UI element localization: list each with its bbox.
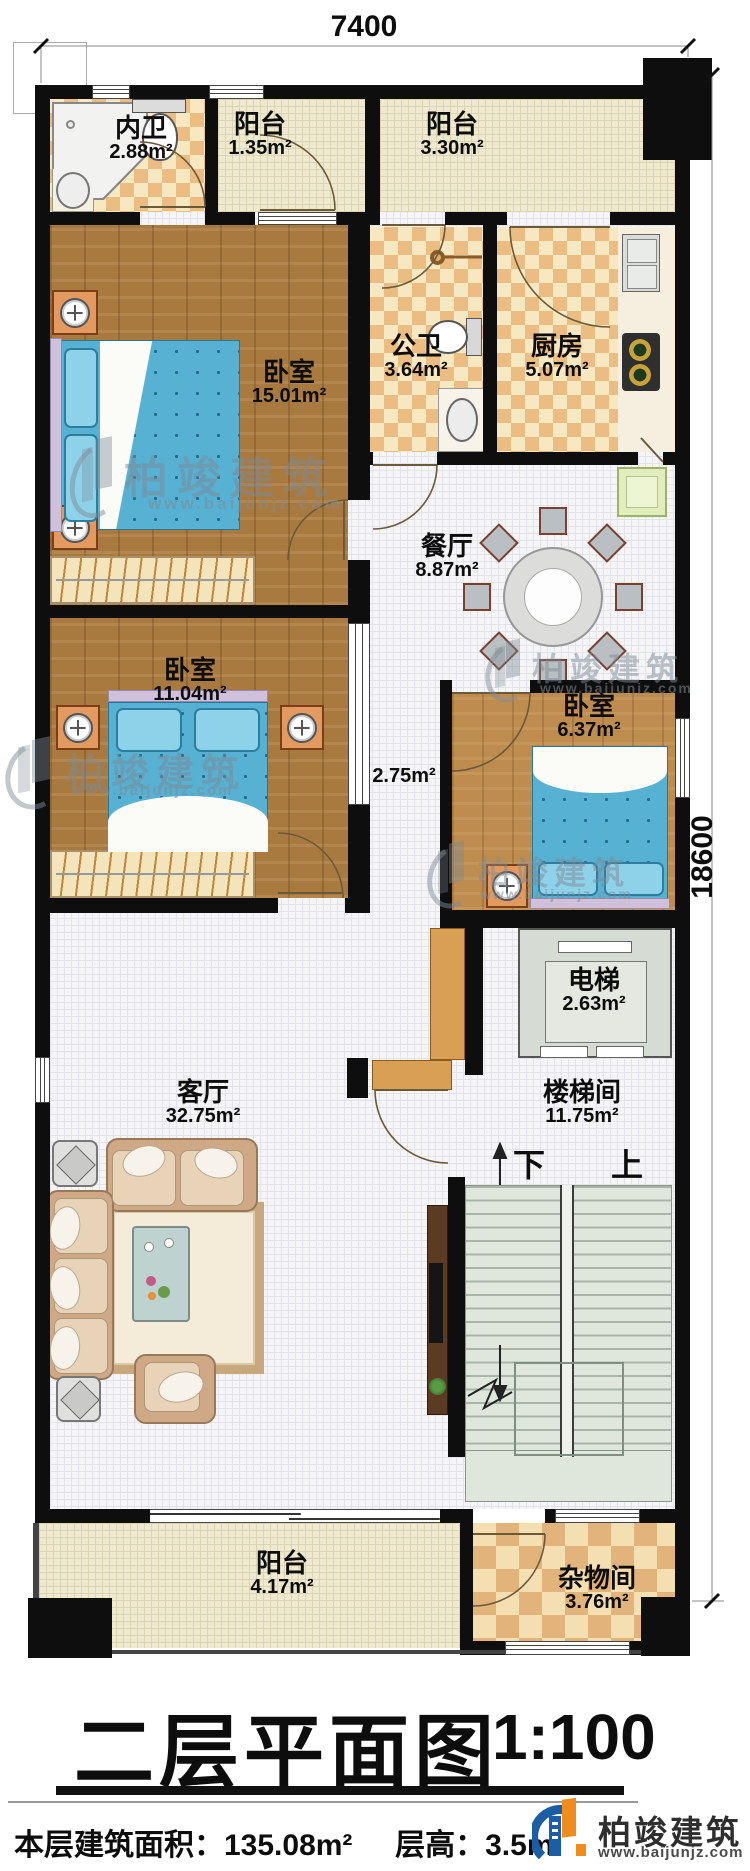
- wardrobe-rod: [56, 579, 249, 581]
- coffee-table: [132, 1226, 190, 1322]
- table-lamp-icon: [56, 1145, 96, 1185]
- room-area: 32.75m²: [166, 1106, 241, 1128]
- cup: [164, 1238, 174, 1248]
- room-area: 3.64m²: [384, 360, 447, 382]
- room-area: 5.07m²: [525, 360, 588, 382]
- room-area: 11.75m²: [543, 1106, 621, 1128]
- window: [209, 85, 264, 99]
- nightstand-lamp: [492, 871, 522, 901]
- bed-pillow: [538, 862, 598, 896]
- room-name: 电梯: [562, 966, 625, 994]
- elevator-door: [596, 1046, 644, 1058]
- stair-landing-outline: [514, 1362, 624, 1456]
- corner-block: [641, 1597, 690, 1656]
- sink-basin: [627, 239, 657, 263]
- wall: [465, 928, 483, 1075]
- towel-ring-icon: [430, 250, 445, 265]
- wall: [205, 85, 218, 212]
- room-label-balcony-bottom: 阳台 4.17m²: [250, 1549, 313, 1599]
- flower-decor: [146, 1276, 156, 1286]
- title-underline: [56, 1786, 624, 1795]
- dining-chair: [463, 583, 491, 611]
- nightstand-lamp: [60, 298, 90, 328]
- shower-drain: [66, 120, 75, 129]
- nightstand: [280, 705, 324, 750]
- nightstand: [52, 290, 98, 335]
- room-label-gongwei: 公卫 3.64m²: [384, 332, 447, 382]
- window: [92, 85, 130, 99]
- room-label-bedroom-right: 卧室 6.37m²: [557, 692, 620, 742]
- logo-building-orange: [562, 1798, 576, 1838]
- elevator-door: [540, 1046, 588, 1058]
- window: [258, 212, 337, 225]
- window: [505, 1641, 630, 1655]
- plant-icon: [429, 1378, 446, 1395]
- room-area: 15.01m²: [252, 386, 327, 408]
- stove-burner: [629, 339, 651, 361]
- bed-blanket: [108, 796, 268, 852]
- room-label-bedroom-left: 卧室 11.04m²: [153, 656, 226, 706]
- wall: [348, 452, 373, 465]
- room-area: 6.37m²: [557, 720, 620, 742]
- bed-pillow: [194, 708, 260, 752]
- bed-pillow: [64, 348, 98, 428]
- bed-blanket: [533, 747, 667, 793]
- room-label-neiwei: 内卫 2.88m²: [109, 114, 172, 164]
- room-label-dining: 餐厅 8.87m²: [415, 532, 478, 582]
- bed-headboard: [50, 338, 62, 532]
- tv-icon: [429, 1263, 443, 1343]
- corner-block: [28, 1598, 112, 1658]
- room-name: 公卫: [384, 332, 447, 360]
- wall: [347, 1058, 368, 1098]
- end-table: [52, 1140, 98, 1187]
- room-name: 卧室: [557, 692, 620, 720]
- room-label-kitchen: 厨房 5.07m²: [525, 332, 588, 382]
- room-name: 卧室: [153, 656, 226, 684]
- nightstand-lamp: [63, 713, 93, 743]
- room-area: 4.17m²: [250, 1577, 313, 1599]
- floor-plan: 柏竣建筑 www.baijunjz.com 柏竣建筑 www.baijunjz.…: [0, 0, 750, 1871]
- wall: [483, 452, 638, 465]
- room-area: 1.35m²: [228, 138, 291, 160]
- bed-pillow: [116, 708, 182, 752]
- flower-decor: [158, 1286, 170, 1298]
- room-area: 3.76m²: [558, 1592, 636, 1614]
- flower-decor: [148, 1292, 156, 1300]
- bed-pillow: [604, 862, 664, 896]
- wall: [440, 910, 690, 928]
- dimension-right: 18600: [686, 787, 720, 927]
- room-label-balcony-top-left: 阳台 1.35m²: [228, 110, 291, 160]
- hall-cabinet: [430, 928, 465, 1060]
- wall: [365, 99, 380, 212]
- wardrobe: [50, 850, 255, 898]
- wall: [610, 212, 675, 225]
- table-lamp-icon: [60, 1380, 100, 1420]
- drawing-scale: 1:100: [492, 1700, 656, 1774]
- room-name: 阳台: [250, 1549, 313, 1577]
- stair-down-label: 下: [513, 1140, 545, 1186]
- brand-logo-icon: [532, 1798, 592, 1864]
- window: [555, 1509, 640, 1523]
- wall: [437, 452, 483, 465]
- room-name: 厨房: [525, 332, 588, 360]
- wall: [35, 605, 348, 618]
- wall: [35, 1509, 150, 1523]
- room-label-bedroom-master: 卧室 15.01m²: [252, 358, 327, 408]
- stove-icon: [622, 333, 660, 391]
- toilet-tank: [466, 318, 482, 356]
- wall: [440, 680, 452, 910]
- room-label-storage: 杂物间 3.76m²: [558, 1564, 636, 1614]
- room-name: 阳台: [420, 110, 483, 138]
- floor-height-label: 层高：3.5m: [395, 1829, 553, 1862]
- wall: [445, 212, 507, 225]
- wall: [460, 1509, 473, 1655]
- room-area: 8.87m²: [415, 560, 478, 582]
- dimension-tick: [705, 1594, 719, 1608]
- room-name: 楼梯间: [543, 1078, 621, 1106]
- fridge-top: [626, 476, 658, 508]
- room-area: 2.63m²: [562, 994, 625, 1016]
- wall: [205, 212, 255, 225]
- wall: [663, 452, 675, 465]
- room-area: 11.04m²: [153, 684, 226, 706]
- end-table: [56, 1376, 101, 1422]
- dining-chair: [539, 507, 567, 535]
- room-label-elevator: 电梯 2.63m²: [562, 966, 625, 1016]
- brand-url: www.baijunjz.com: [598, 1844, 743, 1861]
- bed-headboard: [530, 898, 670, 909]
- sink-icon: [56, 172, 90, 209]
- stove-burner: [629, 364, 651, 386]
- cup: [144, 1242, 154, 1252]
- stair-landing: [465, 1450, 672, 1502]
- stair-up-label: 上: [611, 1140, 643, 1186]
- fridge-icon: [617, 467, 667, 517]
- nightstand-lamp: [287, 713, 317, 743]
- dining-table-top: [524, 568, 582, 626]
- wall: [448, 1177, 465, 1457]
- dimension-top: 7400: [331, 10, 398, 44]
- wall: [35, 85, 690, 99]
- bed-pillow: [64, 434, 98, 522]
- window: [348, 623, 370, 805]
- window: [675, 718, 690, 798]
- wall: [345, 898, 370, 913]
- room-name: 卧室: [252, 358, 327, 386]
- window: [35, 1057, 50, 1103]
- dining-chair: [615, 583, 643, 611]
- wall: [35, 212, 140, 225]
- nightstand: [486, 864, 528, 908]
- toilet-tank: [132, 99, 186, 113]
- wall: [35, 85, 50, 1523]
- elevator-counterweight: [558, 941, 632, 953]
- dimension-tick: [681, 39, 695, 53]
- kitchen-sink: [622, 234, 660, 292]
- wall: [35, 898, 278, 913]
- room-name: 杂物间: [558, 1564, 636, 1592]
- sink-basin: [627, 265, 657, 289]
- hall-cabinet: [372, 1060, 452, 1090]
- room-name: 餐厅: [415, 532, 478, 560]
- wardrobe: [50, 556, 255, 604]
- room-label-balcony-top-right: 阳台 3.30m²: [420, 110, 483, 160]
- room-area: 2.88m²: [109, 142, 172, 164]
- corner-block: [643, 58, 712, 160]
- wall: [483, 212, 497, 465]
- nightstand: [56, 705, 100, 750]
- balcony-rail: [33, 1523, 39, 1600]
- room-label-hallway: 2.75m²: [372, 766, 435, 788]
- room-label-stairwell: 楼梯间 11.75m²: [543, 1078, 621, 1128]
- footer-info: 本层建筑面积：135.08m² 层高：3.5m: [14, 1820, 554, 1864]
- sliding-door: [150, 1509, 440, 1523]
- wardrobe-rod: [56, 873, 249, 875]
- room-area: 2.75m²: [372, 766, 435, 788]
- room-name: 阳台: [228, 110, 291, 138]
- logo-block-orange: [576, 1844, 586, 1856]
- room-name: 内卫: [109, 114, 172, 142]
- room-area: 3.30m²: [420, 138, 483, 160]
- room-name: 客厅: [166, 1078, 241, 1106]
- floor-area-label: 本层建筑面积：135.08m²: [14, 1829, 352, 1862]
- sink-icon: [446, 398, 478, 442]
- room-label-living: 客厅 32.75m²: [166, 1078, 241, 1128]
